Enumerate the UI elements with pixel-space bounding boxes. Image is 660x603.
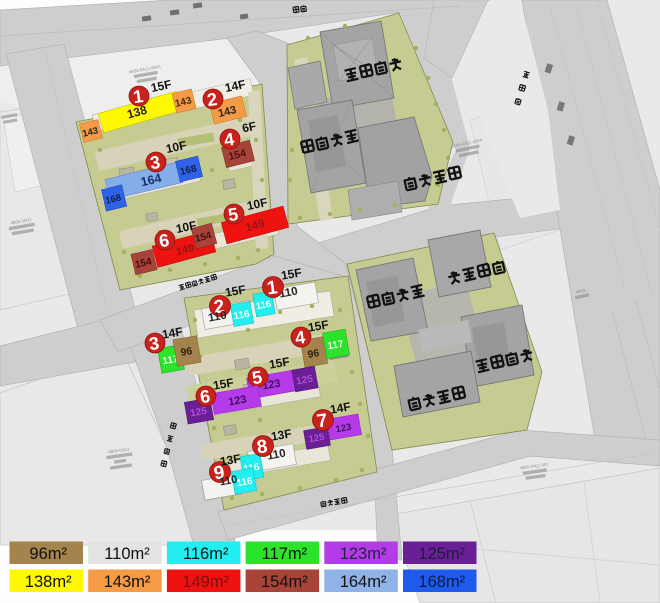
svg-text:154m²: 154m² bbox=[261, 573, 308, 591]
svg-text:168m²: 168m² bbox=[418, 573, 465, 591]
svg-text:96: 96 bbox=[307, 347, 321, 361]
svg-text:138m²: 138m² bbox=[25, 573, 72, 591]
svg-text:96: 96 bbox=[180, 345, 194, 359]
svg-text:164m²: 164m² bbox=[340, 573, 387, 591]
svg-text:96m²: 96m² bbox=[29, 545, 67, 563]
svg-text:110m²: 110m² bbox=[104, 545, 150, 563]
svg-text:123m²: 123m² bbox=[340, 545, 387, 563]
svg-text:6F: 6F bbox=[241, 119, 258, 136]
svg-text:116m²: 116m² bbox=[183, 545, 229, 563]
svg-text:125m²: 125m² bbox=[418, 545, 465, 563]
svg-text:149m²: 149m² bbox=[182, 573, 229, 591]
svg-text:117m²: 117m² bbox=[262, 545, 308, 563]
svg-text:143m²: 143m² bbox=[104, 573, 151, 591]
